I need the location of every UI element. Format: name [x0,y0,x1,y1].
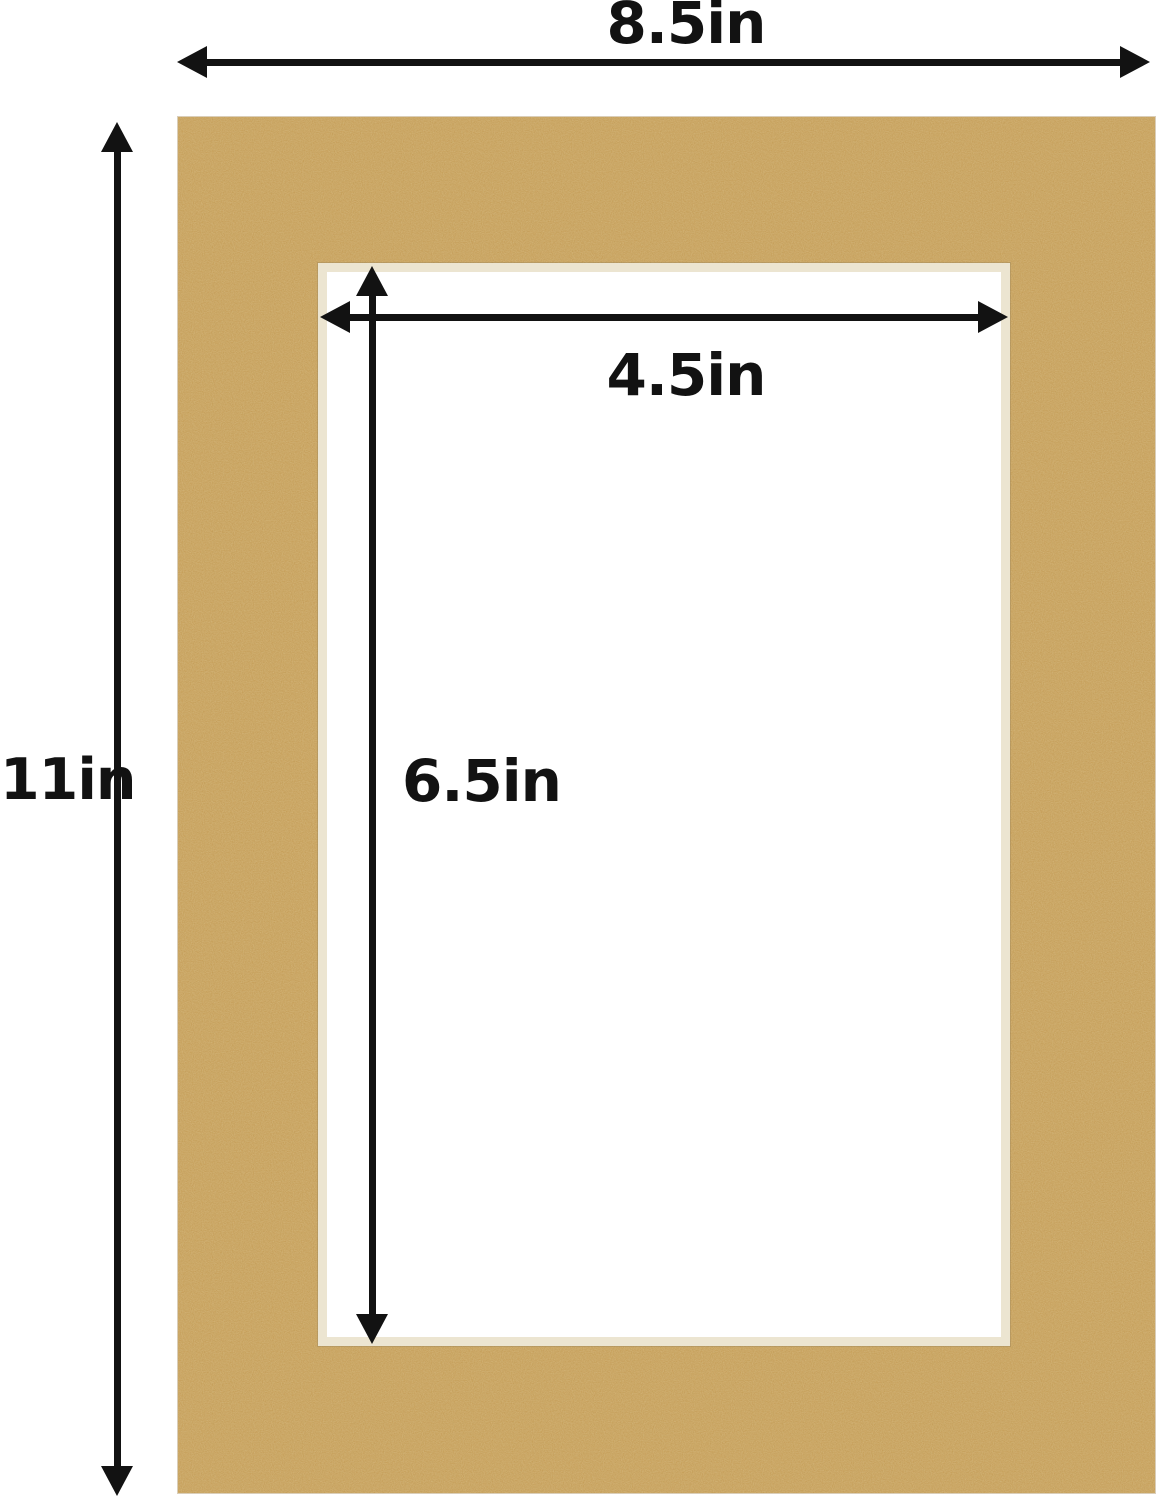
arrow-line [350,314,978,321]
opening-width-arrow [320,301,1008,333]
outer-width-label: 8.5in [200,0,1160,52]
arrow-line [207,59,1120,66]
mat-dimension-diagram: 8.5in 11in 4.5in 6.5in [0,0,1160,1500]
opening-height-arrow [356,266,388,1344]
opening-height-label: 6.5in [402,752,561,810]
arrowhead-down-icon [101,1466,133,1496]
arrow-line [369,296,376,1314]
arrowhead-right-icon [978,301,1008,333]
outer-height-label: 11in [0,752,100,809]
arrowhead-down-icon [356,1314,388,1344]
arrowhead-left-icon [320,301,350,333]
arrowhead-up-icon [101,122,133,152]
arrowhead-up-icon [356,266,388,296]
opening-width-label: 4.5in [344,346,1028,404]
